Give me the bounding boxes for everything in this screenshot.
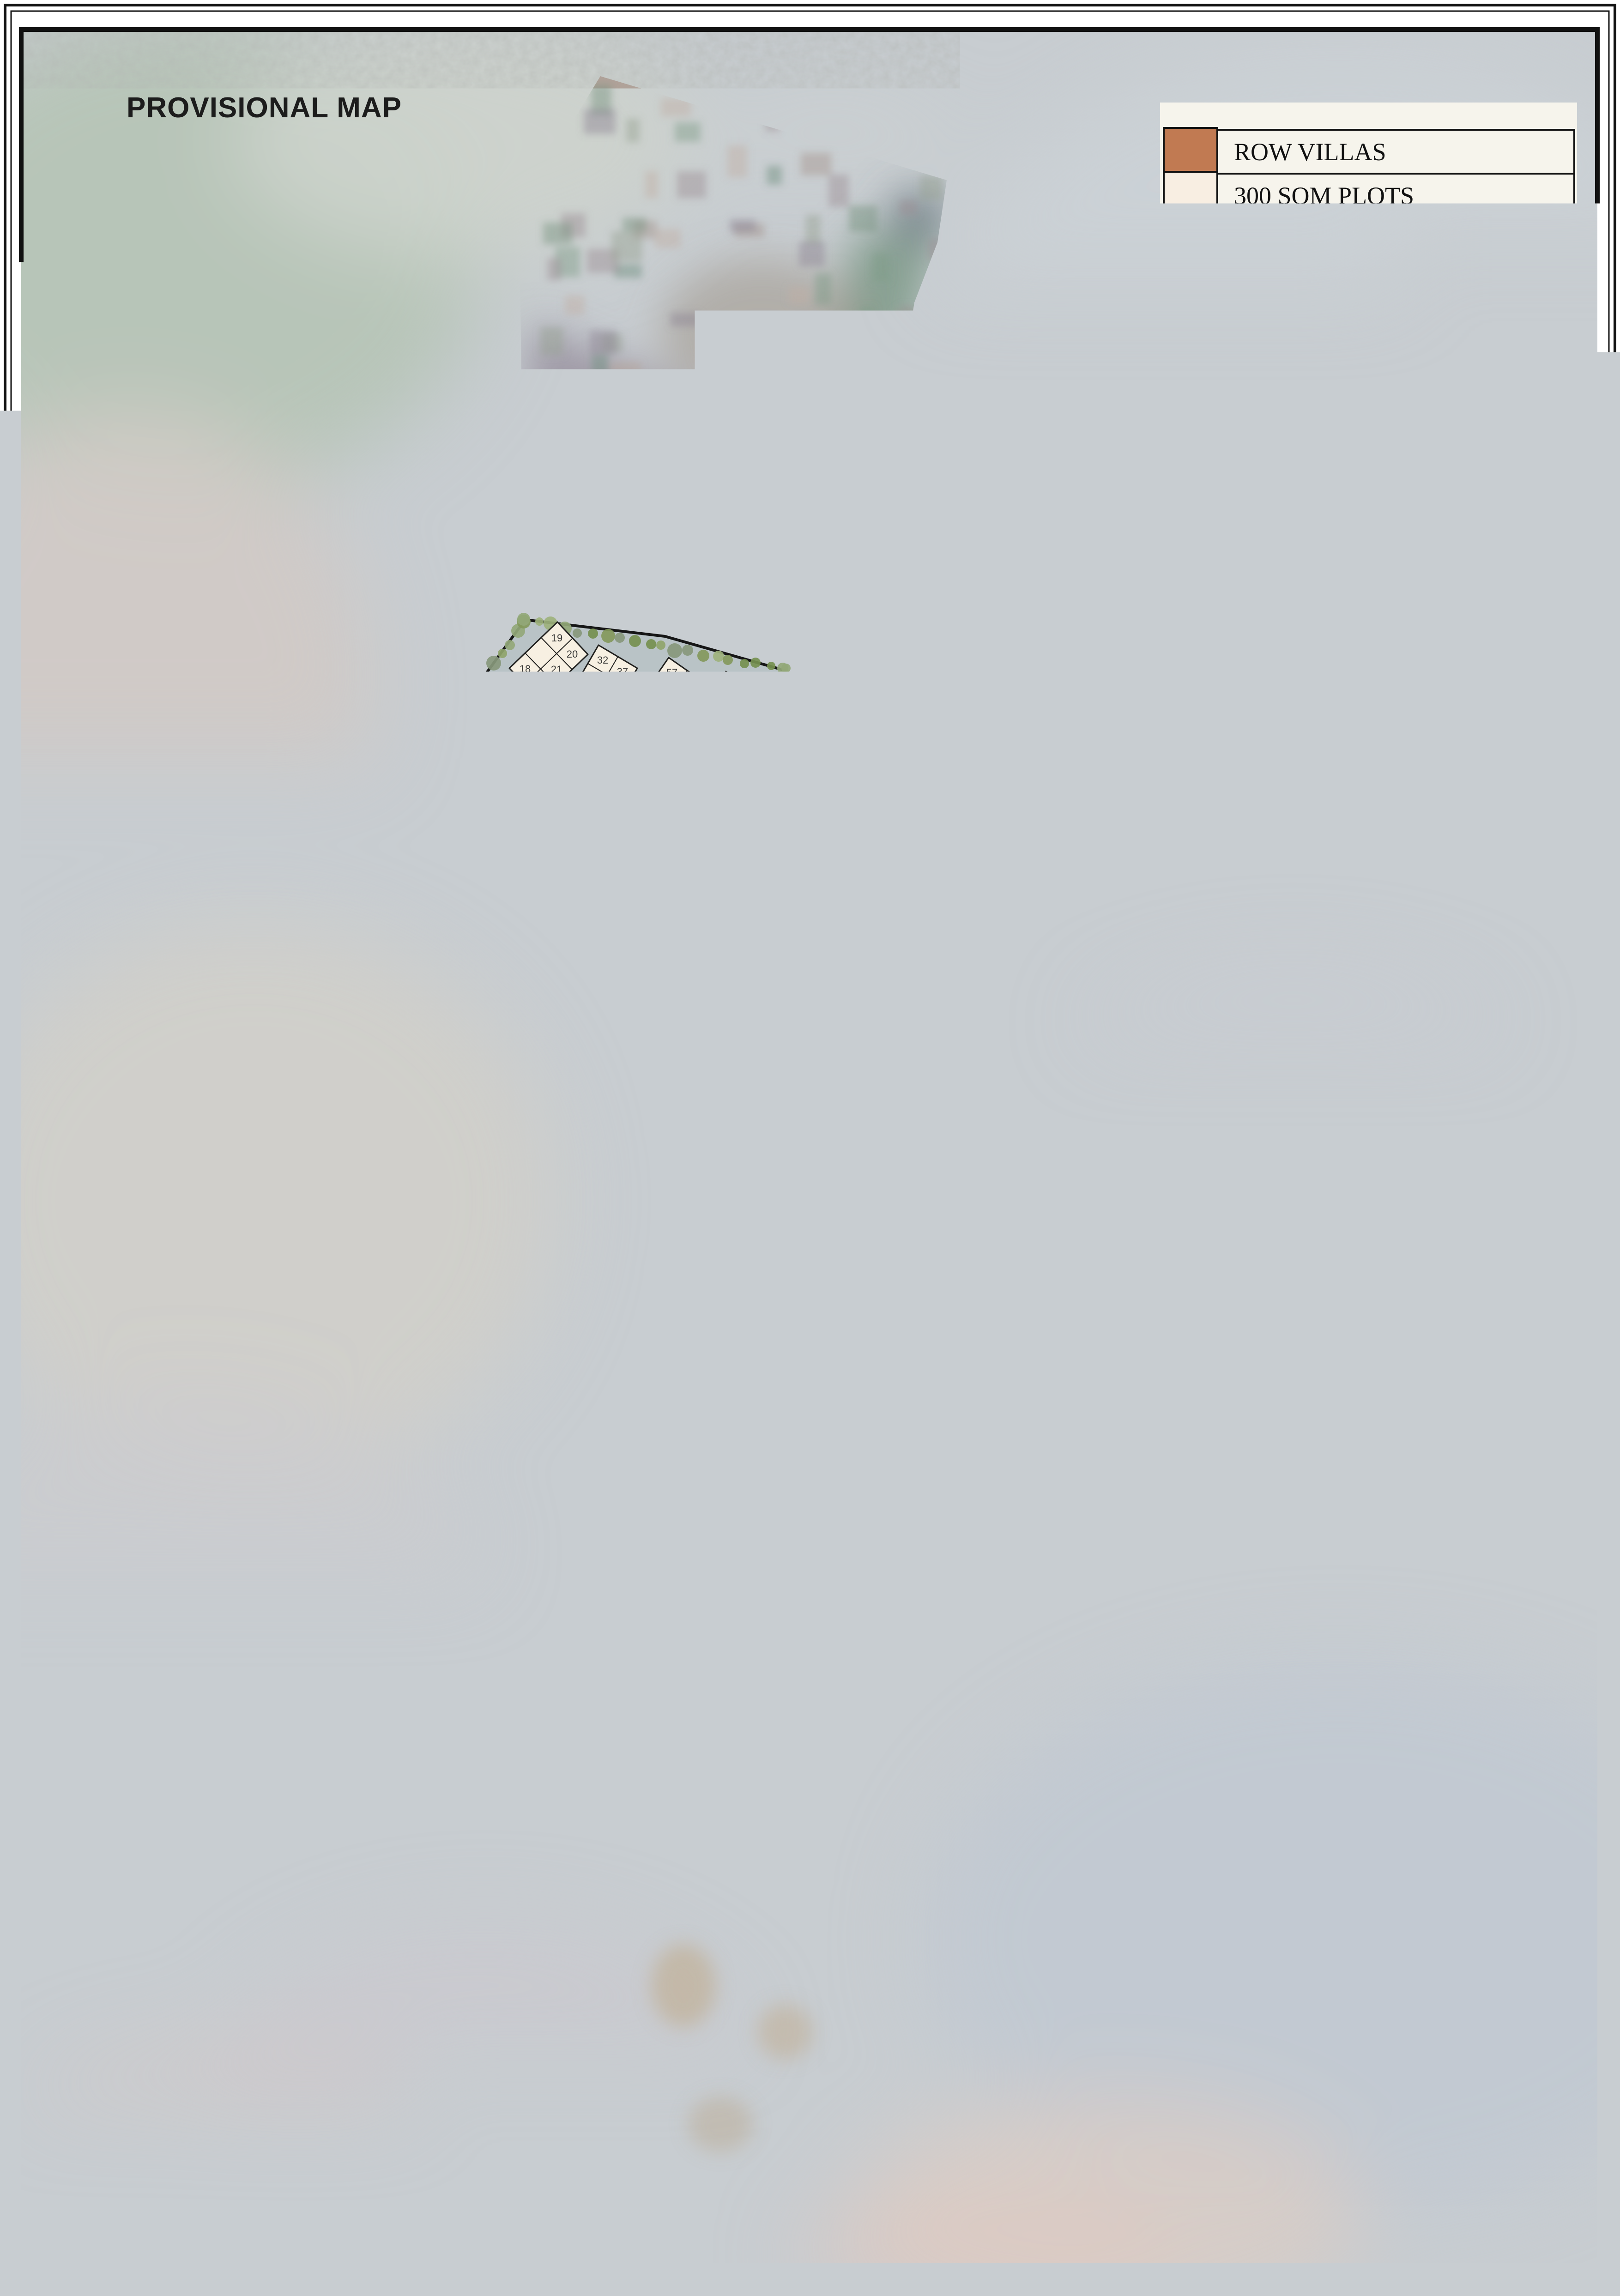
svg-text:30: 30: [316, 906, 333, 922]
svg-text:TOTAL PLOT AREA = 256166 SQM: TOTAL PLOT AREA = 256166 SQM: [41, 1562, 363, 1585]
svg-text:6: 6: [276, 782, 284, 797]
svg-text:15: 15: [260, 821, 276, 836]
svg-text:131: 131: [481, 1023, 498, 1034]
svg-text:169: 169: [581, 1210, 598, 1221]
svg-text:238: 238: [588, 1470, 605, 1482]
svg-text:158: 158: [556, 1319, 574, 1331]
svg-text:16: 16: [289, 821, 304, 836]
svg-text:269: 269: [712, 1576, 731, 1589]
svg-text:29: 29: [277, 898, 294, 915]
svg-text:39: 39: [596, 702, 607, 714]
svg-text:AMENITIES = 12671.33 SQM = 4.9: AMENITIES = 12671.33 SQM = 4.94%: [41, 1865, 391, 1888]
svg-text:19: 19: [551, 632, 562, 644]
svg-text:259: 259: [656, 1523, 675, 1536]
svg-text:74: 74: [626, 822, 637, 833]
svg-text:18: 18: [346, 820, 362, 835]
svg-text:192: 192: [607, 1130, 624, 1142]
svg-text:134: 134: [466, 977, 484, 989]
svg-text:43: 43: [698, 1889, 716, 1906]
svg-text:136: 136: [484, 959, 501, 971]
svg-text:9.98%: 9.98%: [41, 1811, 98, 1834]
svg-text:3: 3: [195, 783, 203, 798]
svg-text:20: 20: [403, 819, 419, 834]
svg-text:42: 42: [725, 1893, 743, 1910]
svg-text:37: 37: [729, 1869, 747, 1886]
svg-text:24: 24: [512, 801, 523, 812]
svg-text:52: 52: [609, 751, 620, 762]
svg-text:28: 28: [555, 728, 566, 739]
svg-text:SCHOOL: SCHOOL: [409, 1973, 490, 1994]
svg-text:181: 181: [608, 1339, 625, 1350]
svg-text:49: 49: [574, 801, 585, 813]
svg-text:222: 222: [619, 1600, 636, 1611]
svg-text:42: 42: [320, 947, 338, 964]
svg-text:111: 111: [469, 942, 484, 953]
svg-text:3.300 SQM PLOTS = 96690.91 SQM: 3.300 SQM PLOTS = 96690.91 SQM: [41, 1728, 375, 1751]
svg-text:13: 13: [515, 721, 526, 732]
svg-text:27: 27: [544, 746, 555, 757]
svg-text:195: 195: [642, 1247, 659, 1259]
svg-text:164: 164: [554, 1214, 571, 1226]
svg-text:51: 51: [707, 1946, 724, 1964]
svg-text:231: 231: [557, 1470, 574, 1481]
svg-text:50: 50: [586, 785, 597, 796]
svg-text:42: 42: [564, 757, 575, 769]
svg-text:193: 193: [639, 1157, 658, 1171]
svg-text:ORGANIC CAFÉS & CONSCIOUS DINI: ORGANIC CAFÉS & CONSCIOUS DINING WITH: [937, 1142, 1364, 1162]
svg-text:211: 211: [534, 1416, 550, 1428]
svg-text:166: 166: [580, 1154, 598, 1166]
svg-text:PROVISIONAL MAP: PROVISIONAL MAP: [127, 92, 402, 124]
svg-text:106: 106: [580, 913, 599, 926]
svg-text:154: 154: [558, 1389, 575, 1401]
svg-text:233: 233: [557, 1434, 574, 1446]
svg-text:128: 128: [495, 1069, 512, 1080]
svg-text:147: 147: [531, 1285, 548, 1296]
svg-text:254: 254: [673, 1471, 690, 1482]
svg-text:153: 153: [533, 1390, 550, 1401]
svg-text:31: 31: [586, 673, 598, 684]
svg-text:267: 267: [669, 1574, 688, 1587]
svg-text:160: 160: [556, 1284, 573, 1296]
svg-text:1.ROW VILLAS = 22952.96 SQM: 1.ROW VILLAS = 22952.96 SQM: [41, 1674, 342, 1697]
svg-text:157: 157: [557, 1337, 574, 1348]
svg-text:WATER BODY: WATER BODY: [1234, 270, 1394, 298]
svg-text:WATER THERAPY POOLS & WELLNESS: WATER THERAPY POOLS & WELLNESS LAKES: [996, 1013, 1426, 1033]
svg-text:232: 232: [557, 1452, 574, 1464]
svg-text:250: 250: [650, 1452, 667, 1464]
svg-text:110: 110: [483, 930, 499, 941]
svg-text:199: 199: [640, 1321, 657, 1333]
svg-text:263: 263: [718, 1546, 737, 1559]
svg-text:256: 256: [677, 1442, 695, 1453]
svg-text:189: 189: [606, 1191, 623, 1202]
svg-text:113: 113: [443, 985, 459, 996]
svg-text:48: 48: [562, 818, 573, 829]
svg-text:54: 54: [632, 717, 643, 729]
svg-text:148: 148: [531, 1302, 548, 1314]
svg-text:215: 215: [532, 1487, 550, 1499]
svg-text:92: 92: [681, 782, 692, 793]
svg-text:116: 116: [458, 1030, 474, 1042]
svg-text:261: 261: [697, 1525, 716, 1538]
svg-text:99: 99: [576, 877, 589, 892]
svg-text:225: 225: [606, 1555, 623, 1566]
svg-text:25: 25: [523, 782, 534, 794]
svg-text:5: 5: [249, 782, 257, 798]
svg-text:190: 190: [606, 1172, 623, 1184]
svg-text:205: 205: [480, 1492, 499, 1504]
svg-text:108: 108: [536, 912, 555, 924]
svg-text:72: 72: [569, 847, 580, 859]
svg-text:45: 45: [403, 956, 420, 973]
svg-text:10: 10: [750, 1703, 769, 1721]
svg-text:129: 129: [490, 1053, 508, 1065]
svg-text:251: 251: [647, 1467, 665, 1478]
svg-text:2.500SQM PLOTS = 22195.6 SQM: 2.500SQM PLOTS = 22195.6 SQM: [41, 1699, 358, 1722]
svg-text:27: 27: [220, 892, 237, 909]
svg-text:168: 168: [581, 1191, 598, 1203]
svg-text:8: 8: [331, 781, 339, 797]
svg-text:69: 69: [604, 797, 615, 809]
svg-text:31: 31: [343, 908, 360, 925]
svg-text:44: 44: [376, 953, 393, 970]
svg-text:176: 176: [583, 1339, 600, 1351]
svg-text:WELLNESS CLUB WITH YOGA & MEDI: WELLNESS CLUB WITH YOGA & MEDITATION CEN…: [957, 838, 1469, 858]
svg-text:NATUROPATHY CLINICS: NATUROPATHY CLINICS: [40, 1359, 262, 1379]
svg-text:217: 217: [545, 1532, 562, 1543]
svg-text:7: 7: [490, 716, 495, 728]
svg-text:75: 75: [638, 804, 649, 816]
svg-text:247: 247: [657, 1409, 674, 1420]
svg-text:141: 141: [528, 1180, 545, 1191]
svg-text:210: 210: [502, 1452, 521, 1465]
svg-text:44: 44: [543, 794, 554, 805]
svg-text:149: 149: [532, 1320, 549, 1331]
svg-text:N: N: [1352, 417, 1368, 441]
svg-text:66: 66: [639, 747, 650, 758]
svg-text:87: 87: [742, 694, 753, 706]
svg-text:264: 264: [696, 1545, 715, 1559]
svg-text:77: 77: [663, 769, 674, 780]
svg-text:ECO PRODUCT SHOPS: ECO PRODUCT SHOPS: [937, 1171, 1151, 1191]
svg-text:21: 21: [551, 664, 562, 675]
svg-text:76: 76: [650, 786, 661, 798]
svg-text:41: 41: [753, 1897, 771, 1914]
svg-text:156: 156: [557, 1354, 574, 1366]
svg-text:18: 18: [520, 663, 531, 675]
svg-text:260: 260: [677, 1523, 696, 1537]
svg-text:208: 208: [503, 1491, 522, 1504]
svg-text:ELECTRIC SUB STATION: ELECTRIC SUB STATION: [1024, 1921, 1251, 1941]
svg-text:35: 35: [452, 920, 469, 937]
svg-text:272: 272: [711, 1597, 730, 1611]
svg-text:33: 33: [397, 914, 414, 931]
svg-text:26: 26: [192, 889, 209, 906]
svg-text:40: 40: [780, 1901, 798, 1918]
svg-text:ARANYAM ESTATE: ARANYAM ESTATE: [1236, 2199, 1503, 2230]
svg-text:78: 78: [675, 751, 686, 763]
svg-text:220: 220: [589, 1572, 606, 1584]
svg-text:53: 53: [620, 734, 631, 745]
svg-text:16: 16: [473, 758, 484, 769]
svg-text:33: 33: [776, 1816, 792, 1833]
svg-text:46: 46: [521, 830, 532, 842]
svg-text:29: 29: [565, 709, 576, 721]
svg-text:98: 98: [598, 878, 611, 892]
svg-text:55: 55: [643, 701, 654, 712]
svg-text:114: 114: [448, 1000, 465, 1011]
svg-text:46: 46: [767, 1930, 785, 1947]
svg-text:LAGOON WITH SENIOR LIVING ZONE: LAGOON WITH SENIOR LIVING ZONES: [133, 1088, 490, 1108]
svg-text:3: 3: [448, 782, 453, 794]
svg-text:91: 91: [693, 764, 704, 776]
svg-text:163: 163: [554, 1232, 571, 1244]
svg-text:95: 95: [645, 834, 656, 846]
svg-text:43: 43: [553, 775, 564, 787]
svg-text:185: 185: [607, 1265, 624, 1276]
svg-text:20: 20: [567, 648, 578, 660]
svg-text:28: 28: [248, 895, 266, 912]
svg-text:184: 184: [607, 1283, 624, 1295]
svg-text:105: 105: [603, 914, 622, 927]
svg-text:198: 198: [640, 1303, 658, 1315]
svg-text:152: 152: [533, 1372, 550, 1384]
svg-text:80: 80: [699, 716, 710, 728]
svg-text:246: 246: [613, 1414, 630, 1425]
svg-text:209: 209: [503, 1472, 522, 1485]
svg-text:34: 34: [746, 1835, 762, 1851]
svg-text:PHASE 2: PHASE 2: [1346, 1417, 1466, 1447]
svg-text:137: 137: [498, 947, 515, 959]
svg-text:173: 173: [582, 1284, 599, 1295]
svg-text:4: 4: [222, 783, 230, 798]
svg-text:10: 10: [381, 780, 397, 796]
svg-text:97: 97: [620, 878, 634, 893]
svg-text:104: 104: [535, 935, 554, 948]
svg-text:1: 1: [140, 784, 148, 799]
svg-text:40: 40: [585, 721, 596, 732]
svg-text:38: 38: [756, 1873, 774, 1890]
svg-text:130: 130: [485, 1038, 502, 1050]
svg-text:56: 56: [655, 683, 666, 695]
svg-text:239: 239: [588, 1489, 605, 1501]
svg-text:S: S: [1354, 647, 1366, 671]
svg-text:178: 178: [583, 1376, 600, 1388]
svg-text:73: 73: [614, 839, 625, 851]
svg-text:6: 6: [476, 729, 481, 740]
svg-text:191: 191: [605, 1154, 623, 1166]
svg-text:245: 245: [613, 1432, 630, 1444]
svg-text:14: 14: [231, 822, 247, 837]
svg-text:100: 100: [550, 877, 570, 891]
svg-text:248: 248: [654, 1423, 671, 1435]
svg-text:19: 19: [375, 819, 390, 834]
svg-text:36: 36: [156, 928, 173, 945]
svg-text:81: 81: [711, 699, 722, 710]
svg-text:103: 103: [557, 936, 576, 949]
svg-text:219: 219: [574, 1559, 592, 1571]
svg-text:17: 17: [317, 820, 333, 835]
svg-text:201: 201: [638, 1358, 656, 1370]
svg-text:50: 50: [735, 1951, 753, 1968]
svg-text:177: 177: [583, 1358, 600, 1369]
svg-text:82: 82: [724, 681, 735, 693]
svg-text:127: 127: [500, 1084, 517, 1095]
svg-text:13: 13: [203, 822, 218, 837]
svg-text:RECREATIONAL OPEN SPACE: RECREATIONAL OPEN SPACE: [1234, 314, 1574, 342]
svg-text:49: 49: [763, 1955, 781, 1972]
svg-text:125: 125: [509, 1114, 526, 1126]
svg-text:187: 187: [606, 1228, 623, 1239]
svg-text:172: 172: [582, 1265, 599, 1277]
svg-text:237: 237: [589, 1451, 606, 1462]
svg-text:26: 26: [533, 764, 544, 776]
svg-text:ELECTRIC SUB STATION = 2105.62: ELECTRIC SUB STATION = 2105.62 SQM: [41, 1921, 428, 1944]
svg-text:107: 107: [558, 912, 577, 925]
svg-text:4: 4: [447, 754, 453, 765]
svg-text:132: 132: [476, 1008, 493, 1019]
svg-text:2: 2: [167, 784, 175, 799]
svg-text:1: 1: [631, 1622, 639, 1637]
svg-text:268: 268: [690, 1575, 709, 1589]
svg-text:47: 47: [795, 1934, 813, 1951]
svg-text:234: 234: [558, 1416, 575, 1428]
svg-text:64: 64: [662, 713, 673, 725]
svg-text:255: 255: [675, 1456, 692, 1468]
svg-text:230: 230: [556, 1488, 574, 1499]
svg-text:151: 151: [532, 1355, 550, 1366]
svg-text:12: 12: [174, 822, 190, 837]
svg-text:218: 218: [560, 1545, 577, 1557]
svg-text:7: 7: [304, 782, 312, 797]
svg-text:145: 145: [530, 1250, 547, 1262]
svg-text:63: 63: [674, 696, 685, 708]
svg-text:207: 207: [504, 1511, 523, 1523]
svg-text:5: 5: [461, 741, 467, 753]
svg-text:180: 180: [608, 1357, 625, 1369]
svg-text:252: 252: [645, 1481, 662, 1493]
svg-text:101: 101: [626, 949, 646, 962]
svg-text:68: 68: [616, 780, 627, 792]
svg-text:159: 159: [556, 1302, 573, 1313]
svg-text:14: 14: [502, 733, 513, 745]
svg-text:155: 155: [558, 1372, 575, 1383]
svg-text:71: 71: [581, 831, 592, 842]
svg-text:96: 96: [632, 852, 643, 864]
svg-text:89: 89: [718, 729, 729, 741]
svg-text:122: 122: [486, 1121, 503, 1133]
svg-text:32: 32: [597, 654, 608, 666]
svg-text:142: 142: [528, 1197, 545, 1209]
svg-text:223: 223: [635, 1582, 653, 1594]
svg-text:262: 262: [719, 1526, 737, 1539]
svg-text:109: 109: [496, 918, 514, 929]
svg-text:62: 62: [685, 680, 696, 691]
svg-text:243: 243: [613, 1489, 630, 1501]
svg-text:RESIDENTIAL AREA = 143398.22 S: RESIDENTIAL AREA = 143398.22 SQM = 55.97…: [41, 1616, 495, 1639]
svg-text:236: 236: [589, 1432, 606, 1444]
svg-text:17: 17: [459, 770, 470, 782]
svg-text:25: 25: [163, 886, 180, 903]
svg-text:15: 15: [487, 745, 498, 757]
svg-text:WITH INTEGRATED HEALTHCARE: WITH INTEGRATED HEALTHCARE: [133, 1116, 443, 1136]
svg-text:118: 118: [467, 1061, 484, 1072]
svg-text:214: 214: [533, 1470, 550, 1481]
svg-text:37: 37: [183, 931, 200, 948]
svg-text:HOSPITAL: HOSPITAL: [399, 2037, 493, 2057]
svg-text:300 SQM PLOTS: 300 SQM PLOTS: [1234, 182, 1414, 210]
svg-text:212: 212: [533, 1434, 550, 1445]
svg-text:196: 196: [641, 1266, 659, 1278]
svg-text:133: 133: [471, 992, 488, 1004]
svg-text:216: 216: [532, 1505, 549, 1517]
svg-text:22: 22: [535, 679, 546, 690]
svg-text:57: 57: [666, 667, 677, 678]
svg-text:162: 162: [555, 1249, 572, 1261]
svg-text:253: 253: [671, 1485, 688, 1497]
svg-text:34: 34: [425, 917, 442, 934]
svg-text:90: 90: [706, 747, 717, 758]
svg-text:51: 51: [597, 767, 608, 779]
svg-text:88: 88: [730, 712, 741, 723]
svg-text:221: 221: [604, 1586, 621, 1598]
svg-text:W: W: [1268, 535, 1290, 560]
svg-text:174: 174: [582, 1302, 599, 1314]
svg-text:194: 194: [637, 1175, 655, 1189]
svg-text:11: 11: [146, 822, 161, 838]
svg-text:39: 39: [784, 1877, 801, 1894]
svg-text:39: 39: [238, 937, 255, 955]
svg-text:124: 124: [496, 1152, 513, 1163]
svg-text:41: 41: [293, 943, 310, 961]
svg-text:67: 67: [627, 764, 638, 775]
svg-text:E: E: [1433, 535, 1448, 560]
svg-text:257: 257: [680, 1427, 697, 1439]
svg-text:146: 146: [530, 1268, 547, 1279]
svg-text:119: 119: [472, 1075, 488, 1087]
svg-text:123: 123: [491, 1136, 508, 1148]
svg-text:126: 126: [505, 1099, 522, 1111]
svg-text:CYCLING TRACK: CYCLING TRACK: [863, 2190, 1018, 2211]
svg-text:143: 143: [529, 1215, 546, 1227]
svg-text:94: 94: [657, 817, 668, 828]
svg-text:258: 258: [682, 1413, 699, 1425]
svg-text:ENTRY: ENTRY: [598, 2218, 663, 2238]
svg-text:117: 117: [463, 1045, 479, 1057]
svg-text:165: 165: [553, 1197, 570, 1208]
svg-text:1: 1: [433, 766, 439, 777]
svg-text:RECREATIONAL OPEN SPACE = 2557: RECREATIONAL OPEN SPACE = 25571.73 SQM =: [41, 1784, 510, 1807]
svg-text:36: 36: [701, 1866, 719, 1883]
svg-text:167: 167: [581, 1173, 598, 1184]
svg-text:12: 12: [530, 708, 541, 720]
svg-text:200: 200: [639, 1340, 656, 1352]
svg-text:161: 161: [555, 1267, 572, 1278]
svg-text:500 SQM PLOTS: 500 SQM PLOTS: [1234, 226, 1414, 254]
svg-text:45: 45: [738, 1926, 756, 1943]
svg-text:8: 8: [504, 704, 509, 716]
svg-text:179: 179: [608, 1376, 625, 1387]
svg-text:265: 265: [676, 1544, 695, 1557]
svg-text:115: 115: [453, 1015, 469, 1027]
svg-text:138: 138: [557, 1106, 576, 1119]
svg-text:228: 228: [562, 1514, 579, 1525]
svg-text:202: 202: [638, 1377, 655, 1389]
svg-text:40: 40: [266, 941, 283, 958]
svg-text:171: 171: [582, 1247, 599, 1258]
svg-text:150: 150: [532, 1337, 549, 1349]
